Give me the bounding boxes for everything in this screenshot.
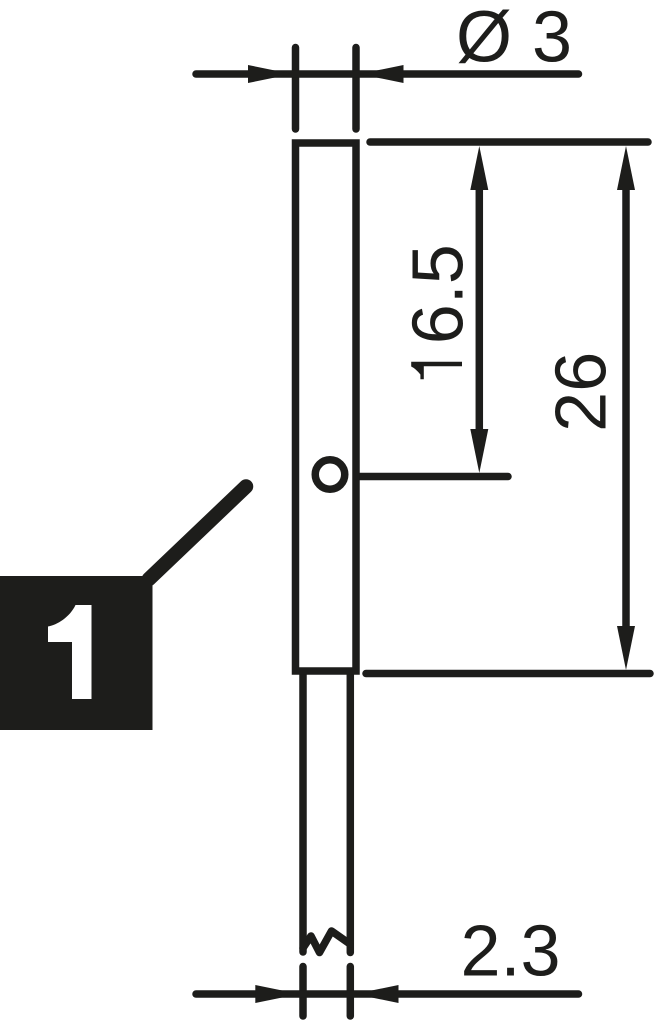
svg-text:6.5: 6.5 xyxy=(399,244,479,344)
svg-text:2.3: 2.3 xyxy=(461,912,561,992)
svg-text:Ø 3: Ø 3 xyxy=(456,0,572,78)
svg-text:26: 26 xyxy=(542,352,622,432)
